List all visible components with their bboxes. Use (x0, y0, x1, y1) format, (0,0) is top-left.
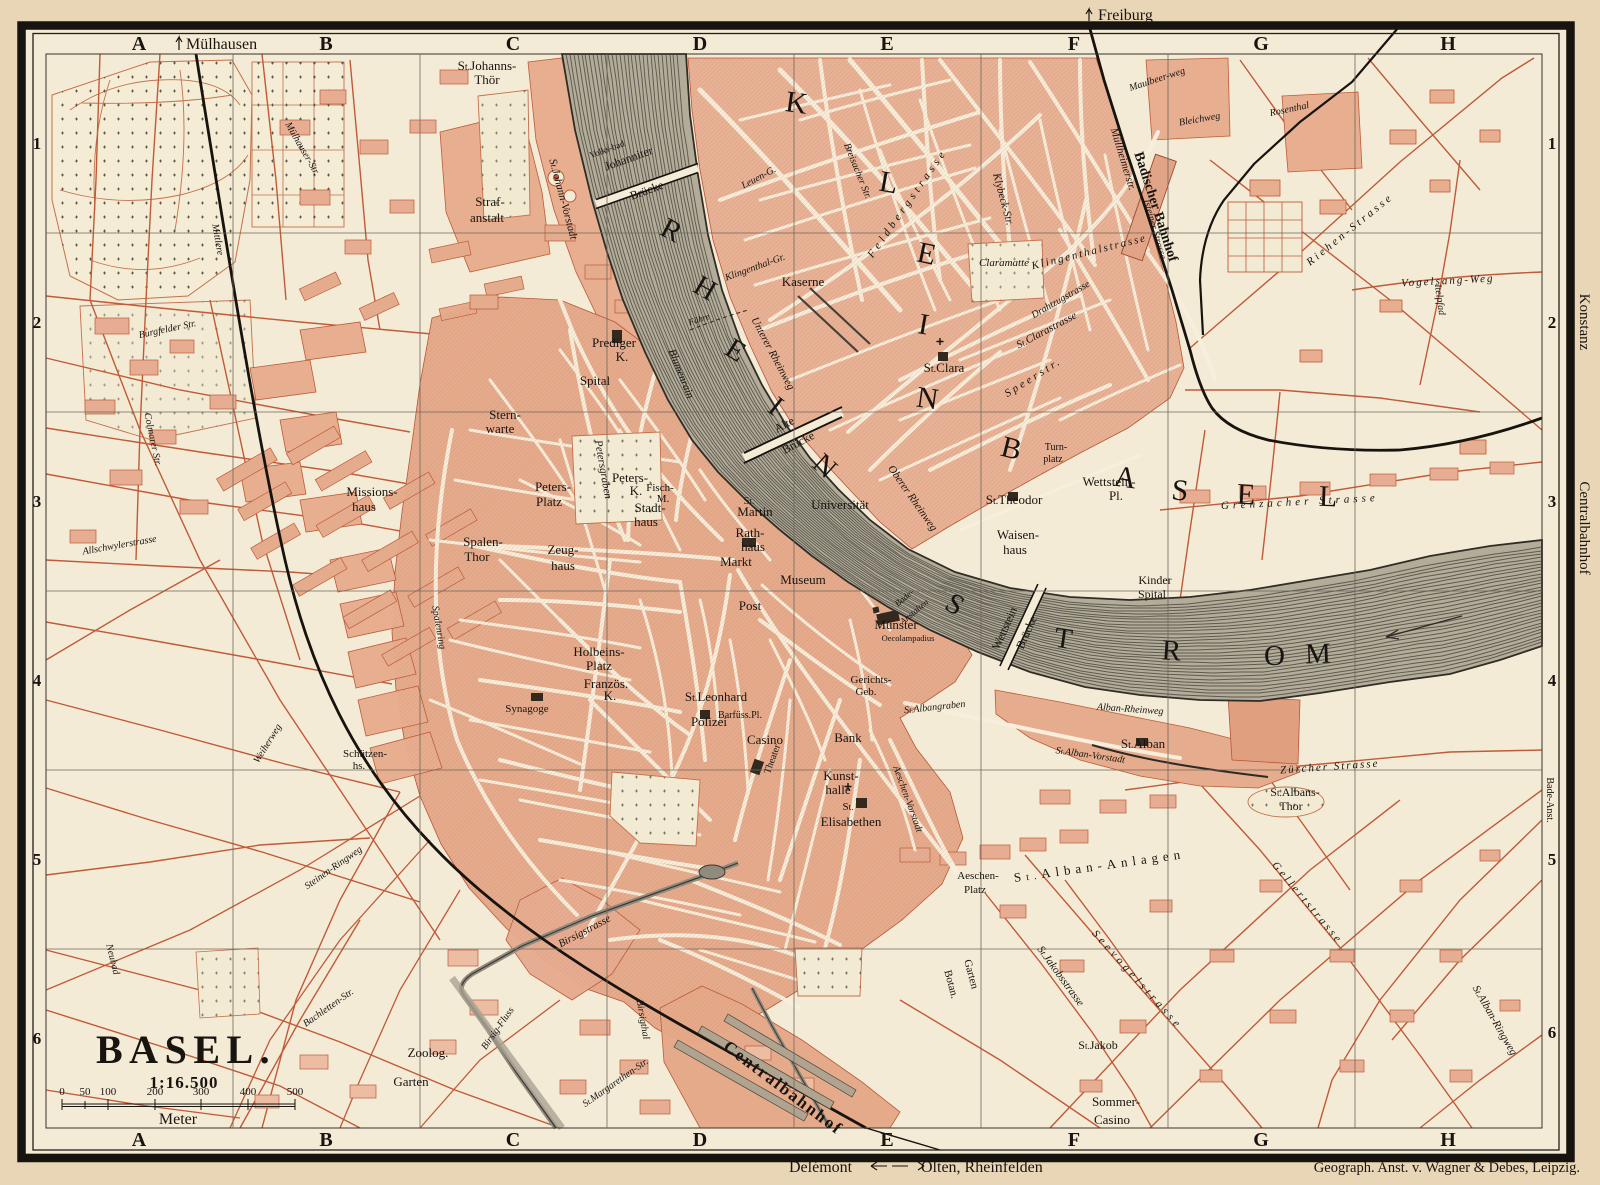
svg-text:Thör: Thör (474, 72, 500, 87)
svg-text:Claramatte: Claramatte (979, 257, 1029, 269)
svg-text:K.: K. (604, 688, 617, 703)
svg-text:S: S (1170, 473, 1190, 508)
svg-text:F: F (1068, 1129, 1080, 1151)
svg-text:Oecolampadius: Oecolampadius (882, 633, 935, 643)
svg-text:G: G (1253, 1129, 1269, 1151)
svg-text:6: 6 (33, 1029, 42, 1048)
svg-text:Geograph. Anst. v. Wagner & De: Geograph. Anst. v. Wagner & Debes, Leipz… (1314, 1160, 1580, 1176)
svg-text:E: E (880, 1129, 893, 1151)
svg-text:Barfüss.Pl.: Barfüss.Pl. (718, 710, 762, 721)
svg-text:Thor: Thor (464, 549, 490, 564)
svg-text:Pl.: Pl. (1109, 488, 1123, 503)
svg-text:4: 4 (1548, 671, 1557, 690)
svg-text:Elisabethen: Elisabethen (821, 814, 882, 829)
svg-text:5: 5 (33, 850, 42, 869)
svg-text:Rath-: Rath- (736, 525, 765, 540)
svg-text:0: 0 (59, 1086, 65, 1098)
svg-text:R: R (1161, 634, 1183, 667)
svg-text:Peters-: Peters- (535, 479, 571, 494)
svg-text:A: A (132, 1129, 147, 1151)
svg-text:A: A (132, 33, 147, 55)
svg-text:Kinder: Kinder (1138, 573, 1171, 587)
svg-text:haus: haus (551, 558, 575, 573)
svg-text:Konstanz: Konstanz (1576, 294, 1592, 351)
svg-text:warte: warte (486, 421, 515, 436)
svg-text:Platz: Platz (964, 884, 986, 896)
svg-text:Platz: Platz (586, 658, 612, 673)
svg-text:Wettstein-: Wettstein- (1082, 474, 1135, 489)
svg-text:K.: K. (630, 483, 643, 498)
svg-text:haus: haus (634, 514, 658, 529)
svg-text:Universität: Universität (811, 497, 869, 512)
svg-text:Prediger: Prediger (592, 335, 637, 350)
svg-text:400: 400 (240, 1086, 257, 1098)
svg-text:Museum: Museum (780, 572, 826, 587)
svg-text:Kunst-: Kunst- (823, 768, 858, 783)
svg-text:C: C (506, 33, 520, 55)
svg-text:Olten, Rheinfelden: Olten, Rheinfelden (921, 1159, 1043, 1176)
svg-text:hs.: hs. (353, 760, 366, 772)
svg-text:B: B (319, 33, 332, 55)
svg-text:50: 50 (80, 1086, 92, 1098)
svg-text:Thor: Thor (1279, 799, 1302, 813)
svg-text:St.: St. (843, 801, 854, 813)
svg-text:M.: M. (657, 493, 670, 505)
svg-text:F: F (1068, 33, 1080, 55)
svg-text:Martin: Martin (737, 504, 773, 519)
svg-text:haus: haus (352, 499, 376, 514)
svg-text:Gerichts-: Gerichts- (851, 674, 892, 686)
svg-text:Synagoge: Synagoge (505, 703, 549, 715)
svg-text:Turn-: Turn- (1045, 442, 1067, 453)
svg-text:halle: halle (825, 782, 850, 797)
svg-text:G: G (1253, 33, 1269, 55)
svg-text:4: 4 (33, 671, 42, 690)
svg-text:Spalen-: Spalen- (463, 534, 503, 549)
svg-text:D: D (693, 1129, 707, 1151)
svg-text:1: 1 (1548, 134, 1557, 153)
svg-text:Platz: Platz (536, 494, 562, 509)
svg-text:Post: Post (739, 598, 762, 613)
svg-text:BASEL.: BASEL. (96, 1027, 276, 1072)
svg-text:Kaserne: Kaserne (782, 274, 825, 289)
svg-text:Missions-: Missions- (346, 484, 397, 499)
svg-text:K.: K. (616, 349, 629, 364)
svg-text:500: 500 (287, 1086, 304, 1098)
svg-text:M: M (1305, 638, 1332, 671)
svg-text:Mülhausen: Mülhausen (186, 36, 257, 53)
svg-text:Bade-Anst.: Bade-Anst. (1544, 777, 1555, 822)
svg-text:2: 2 (1548, 313, 1557, 332)
svg-text:300: 300 (193, 1086, 210, 1098)
svg-text:C: C (506, 1129, 520, 1151)
svg-text:St.Albans-: St.Albans- (1270, 785, 1319, 799)
svg-text:Spital: Spital (580, 373, 611, 388)
svg-text:Holbeins-: Holbeins- (573, 644, 624, 659)
svg-text:Sommer-: Sommer- (1092, 1094, 1140, 1109)
svg-text:Geb.: Geb. (855, 686, 876, 698)
svg-text:Bank: Bank (834, 730, 862, 745)
svg-text:Straf-: Straf- (475, 194, 505, 209)
svg-text:100: 100 (100, 1086, 117, 1098)
svg-text:Garten: Garten (393, 1074, 429, 1089)
svg-text:Meter: Meter (159, 1111, 198, 1128)
svg-text:6: 6 (1548, 1023, 1557, 1042)
svg-text:Zoolog.: Zoolog. (408, 1045, 449, 1060)
svg-text:Aeschen-: Aeschen- (957, 870, 999, 882)
svg-text:Schützen-: Schützen- (343, 748, 387, 760)
svg-text:3: 3 (33, 492, 42, 511)
svg-text:2: 2 (33, 313, 42, 332)
svg-text:anstalt: anstalt (470, 210, 504, 225)
svg-text:Delémont: Delémont (789, 1159, 853, 1176)
svg-text:Freiburg: Freiburg (1098, 7, 1153, 24)
svg-text:3: 3 (1548, 492, 1557, 511)
svg-text:B: B (319, 1129, 332, 1151)
svg-text:Markt: Markt (720, 554, 752, 569)
svg-text:Stern-: Stern- (489, 407, 521, 422)
svg-text:Waisen-: Waisen- (997, 527, 1039, 542)
svg-text:platz: platz (1043, 454, 1063, 465)
svg-text:St.Alban: St.Alban (1121, 736, 1166, 751)
svg-text:D: D (693, 33, 707, 55)
svg-text:E: E (880, 33, 893, 55)
svg-text:St.Jakob: St.Jakob (1078, 1038, 1117, 1052)
svg-text:haus: haus (1003, 542, 1027, 557)
svg-text:Centralbahnhof: Centralbahnhof (1576, 481, 1592, 574)
svg-text:St.Clara: St.Clara (924, 360, 965, 375)
svg-text:Zeug-: Zeug- (547, 542, 578, 557)
svg-text:H: H (1440, 1129, 1456, 1151)
svg-text:N: N (914, 381, 940, 417)
svg-text:Casino: Casino (1094, 1112, 1130, 1127)
svg-text:1: 1 (33, 134, 42, 153)
svg-text:5: 5 (1548, 850, 1557, 869)
svg-text:200: 200 (147, 1086, 164, 1098)
svg-text:O: O (1264, 640, 1285, 672)
svg-text:H: H (1440, 33, 1456, 55)
svg-text:Spital: Spital (1138, 587, 1167, 601)
svg-text:haus: haus (741, 539, 765, 554)
